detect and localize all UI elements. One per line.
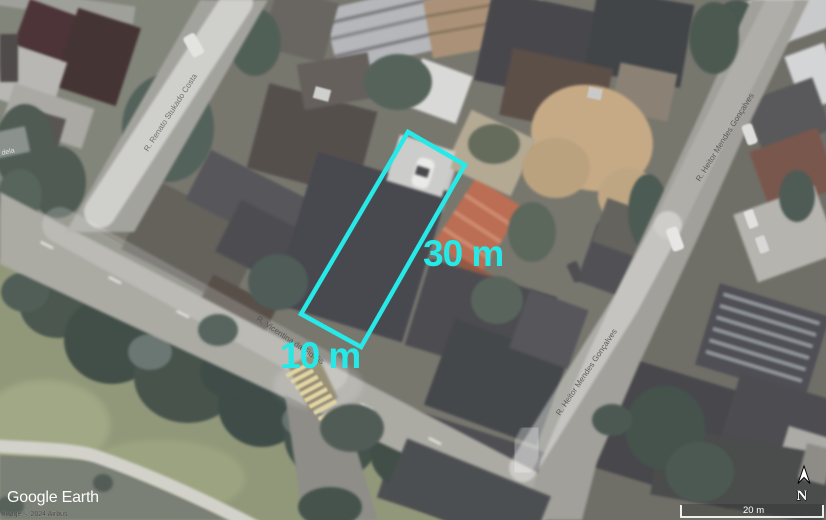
svg-text:Google Earth: Google Earth [7, 489, 99, 506]
svg-text:Image © 2024 Airbus: Image © 2024 Airbus [2, 510, 68, 518]
svg-text:N: N [797, 488, 808, 504]
svg-text:30 m: 30 m [423, 233, 503, 274]
svg-text:20 m: 20 m [743, 505, 764, 516]
svg-text:10 m: 10 m [280, 335, 360, 376]
